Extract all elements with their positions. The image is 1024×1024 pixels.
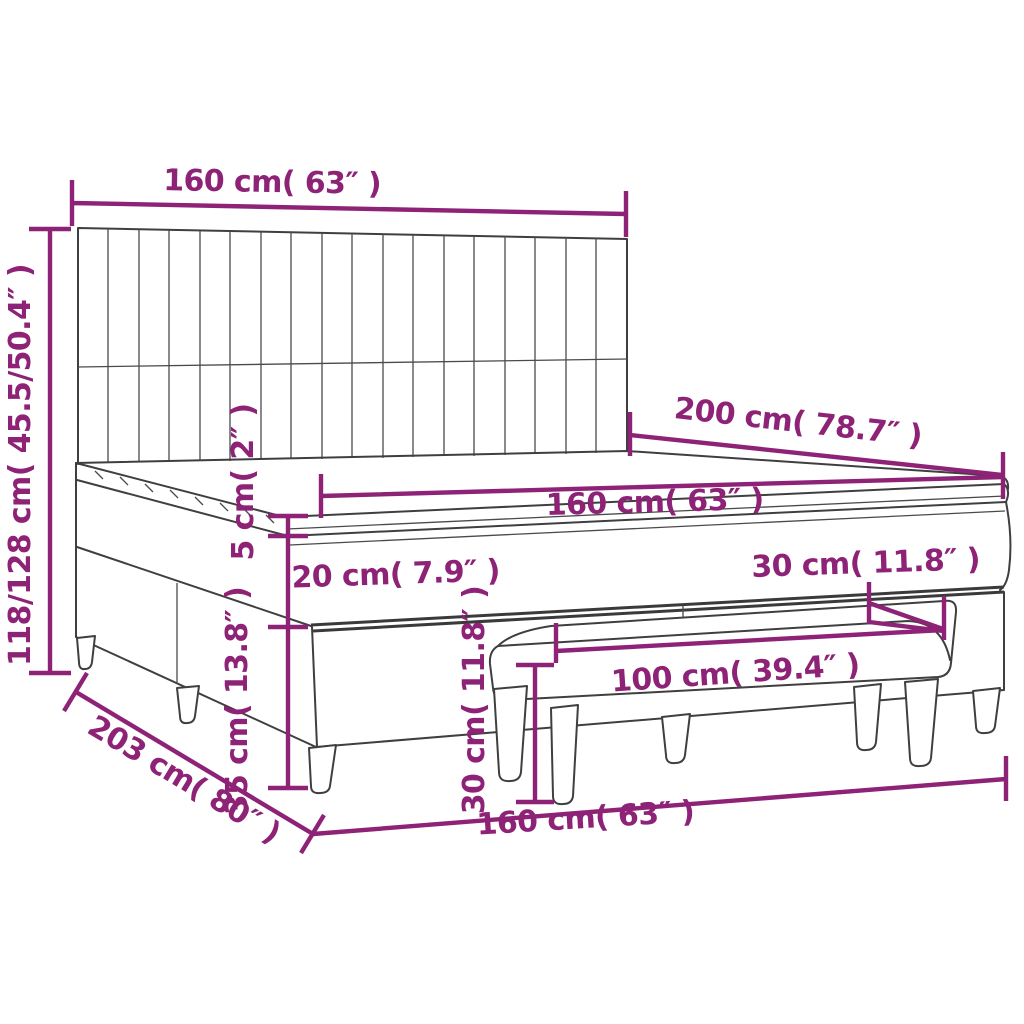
- bed-diagram-canvas: 160 cm( 63″ ) 118/128 cm( 45.5/50.4″ ) 2…: [0, 0, 1024, 1024]
- mattress-topper: [76, 451, 1008, 536]
- box-spring-leg: [973, 688, 1000, 733]
- dim-label-headboard-width: 160 cm( 63″ ): [163, 163, 381, 202]
- headboard-channel-lines: [108, 229, 596, 463]
- dim-label-bench-height: 30 cm( 11.8″ ): [457, 586, 492, 815]
- dim-label-mattress-width: 160 cm( 63″ ): [545, 482, 764, 523]
- box-spring-leg: [77, 636, 95, 669]
- dim-label-total-height: 118/128 cm( 45.5/50.4″ ): [3, 264, 38, 666]
- box-spring-leg: [177, 686, 199, 723]
- box-spring-leg: [309, 745, 336, 793]
- bench-leg: [662, 714, 690, 763]
- dim-headboard-width: 160 cm( 63″ ): [72, 163, 626, 237]
- dim-total-height: 118/128 cm( 45.5/50.4″ ): [3, 229, 71, 673]
- dim-label-frame-width: 160 cm( 63″ ): [476, 794, 696, 842]
- bench-leg: [551, 705, 578, 804]
- dim-label-frame-length: 203 cm( 80″ ): [82, 709, 287, 851]
- bench-leg: [854, 684, 881, 750]
- bench-leg: [494, 686, 527, 781]
- headboard: [78, 228, 627, 464]
- dim-label-bench-depth: 30 cm( 11.8″ ): [751, 542, 981, 585]
- bench-leg: [905, 679, 938, 766]
- dim-frame-width: 160 cm( 63″ ): [313, 756, 1006, 843]
- dim-label-topper-thickness: 5 cm( 2″ ): [226, 404, 261, 561]
- dimension-diagram: 160 cm( 63″ ) 118/128 cm( 45.5/50.4″ ) 2…: [0, 0, 1024, 1024]
